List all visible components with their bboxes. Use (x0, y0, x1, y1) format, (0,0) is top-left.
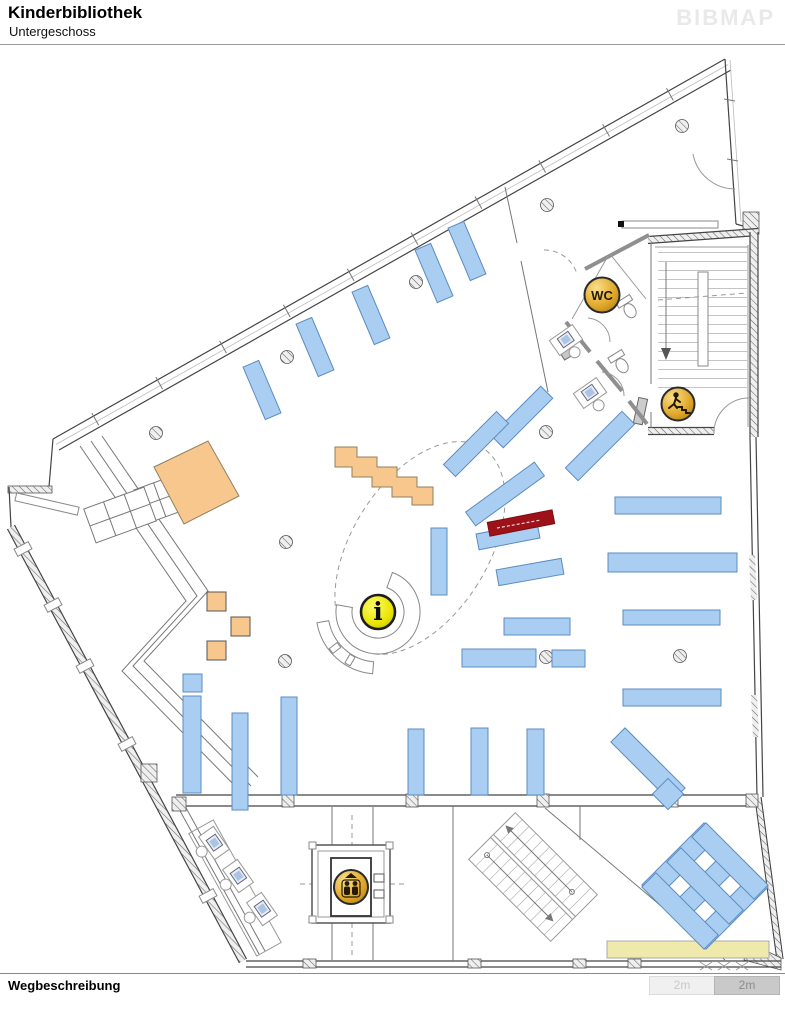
table (207, 641, 226, 660)
toilet (608, 350, 633, 377)
footer: Wegbeschreibung 2m 2m (0, 973, 785, 1011)
floor-mat (607, 941, 769, 958)
shelf (183, 696, 201, 793)
floor-subtitle: Untergeschoss (9, 24, 96, 39)
shelf (448, 221, 486, 280)
scale-segment-dark: 2m (714, 976, 780, 995)
floorplan-map[interactable]: WC i (0, 0, 785, 1011)
shelf (296, 317, 334, 376)
page-title: Kinderbibliothek (8, 3, 142, 23)
shelf (415, 243, 453, 302)
shelf (565, 411, 634, 480)
play-stairs (335, 447, 433, 505)
shelf (527, 729, 544, 795)
central-zone (300, 412, 540, 684)
wc-area (549, 235, 649, 424)
table (207, 592, 226, 611)
header: Kinderbibliothek Untergeschoss BIBMAP (0, 0, 785, 45)
bibmap-logo: BIBMAP (676, 5, 775, 31)
shelf (183, 674, 202, 692)
shelf (408, 729, 424, 795)
wc-label: WC (591, 288, 613, 303)
wc-icon[interactable]: WC (585, 278, 620, 313)
shelf (623, 610, 720, 625)
shelf (471, 728, 488, 795)
shelf (615, 497, 721, 514)
lower-section (172, 797, 769, 961)
shelf (431, 528, 447, 595)
info-label: i (373, 597, 383, 626)
shelf (552, 650, 585, 667)
shelf (623, 689, 721, 706)
shelf (232, 713, 248, 810)
bibmap-page: WC i Kinderbibliothek Untergeschoss BIBM… (0, 0, 785, 1011)
shelf (243, 360, 281, 419)
shelf (608, 553, 737, 572)
shelf (462, 649, 536, 667)
elevator-icon[interactable] (334, 870, 368, 904)
stairs-down-icon[interactable] (662, 388, 695, 421)
table (231, 617, 250, 636)
shelf (281, 697, 297, 795)
info-icon[interactable]: i (361, 595, 395, 629)
staircase-lower (469, 813, 598, 942)
shelf (496, 558, 564, 585)
scale-segment-light: 2m (649, 976, 715, 995)
columns (150, 120, 689, 668)
shelf (352, 285, 390, 344)
shelf (504, 618, 570, 635)
wegbeschreibung-label: Wegbeschreibung (8, 978, 120, 993)
